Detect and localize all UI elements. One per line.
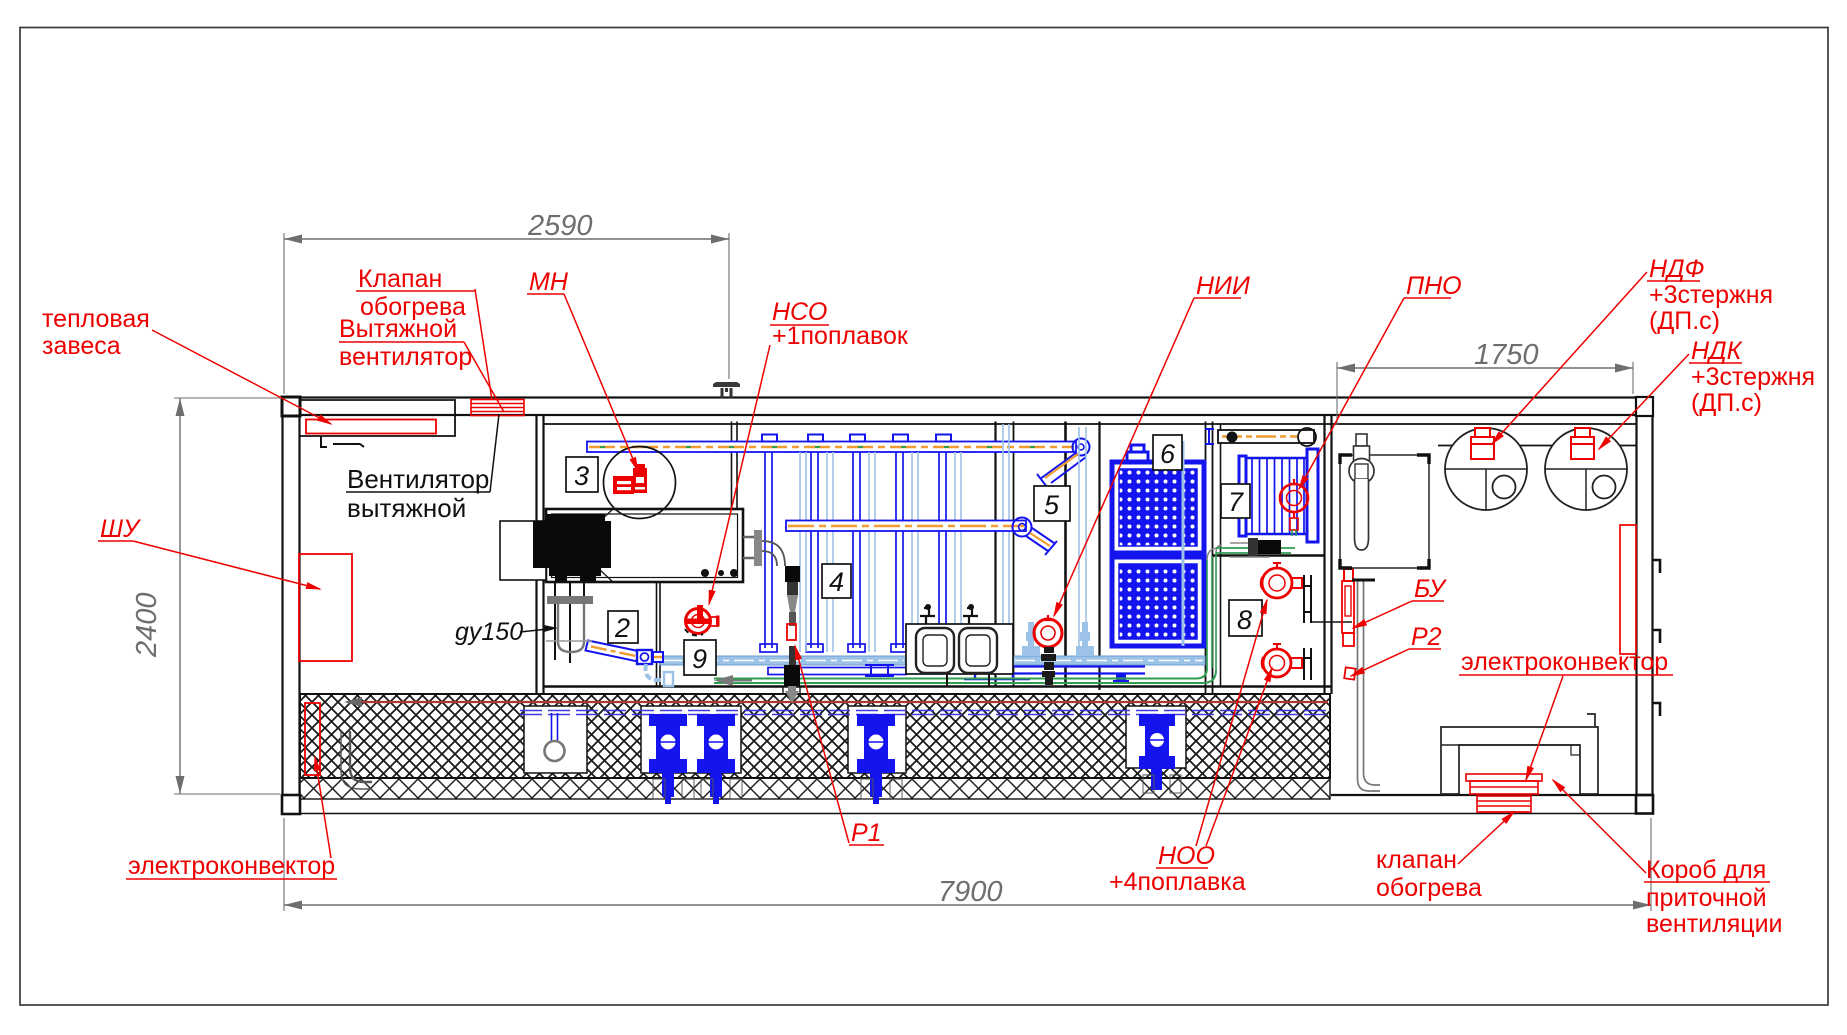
svg-text:обогрева: обогрева bbox=[1376, 874, 1482, 902]
svg-text:(ДП.с): (ДП.с) bbox=[1649, 307, 1720, 335]
svg-text:Клапан: Клапан bbox=[358, 265, 442, 293]
svg-text:Р2: Р2 bbox=[1411, 623, 1442, 651]
svg-text:клапан: клапан bbox=[1376, 846, 1457, 874]
svg-text:приточной: приточной bbox=[1646, 884, 1767, 912]
svg-text:6: 6 bbox=[1160, 439, 1176, 469]
svg-text:3: 3 bbox=[574, 461, 589, 491]
svg-text:НОО: НОО bbox=[1158, 842, 1215, 870]
svg-text:+3стержня: +3стержня bbox=[1691, 363, 1815, 391]
svg-text:БУ: БУ bbox=[1414, 575, 1448, 603]
svg-text:НДК: НДК bbox=[1691, 337, 1743, 365]
svg-text:Вентилятор: Вентилятор bbox=[347, 464, 489, 494]
svg-text:9: 9 bbox=[692, 644, 707, 674]
svg-text:завеса: завеса bbox=[42, 332, 121, 360]
svg-text:НИИ: НИИ bbox=[1196, 272, 1250, 300]
svg-text:4: 4 bbox=[829, 567, 844, 597]
svg-text:5: 5 bbox=[1044, 490, 1060, 520]
svg-text:+3стержня: +3стержня bbox=[1649, 281, 1773, 309]
svg-text:вытяжной: вытяжной bbox=[347, 493, 466, 523]
svg-text:8: 8 bbox=[1237, 605, 1252, 635]
svg-text:+1поплавок: +1поплавок bbox=[772, 322, 909, 350]
svg-text:Короб для: Короб для bbox=[1646, 856, 1766, 884]
svg-text:2: 2 bbox=[614, 613, 630, 643]
svg-text:1750: 1750 bbox=[1474, 339, 1539, 371]
svg-text:Р1: Р1 bbox=[851, 819, 882, 847]
svg-text:7900: 7900 bbox=[938, 876, 1003, 908]
svg-text:НДФ: НДФ bbox=[1649, 255, 1705, 283]
svg-text:вентилятор: вентилятор bbox=[339, 343, 472, 371]
svg-text:+4поплавка: +4поплавка bbox=[1109, 868, 1246, 896]
svg-text:2400: 2400 bbox=[131, 592, 163, 658]
svg-text:2590: 2590 bbox=[527, 210, 593, 242]
svg-text:ПНО: ПНО bbox=[1406, 272, 1462, 300]
svg-text:ШУ: ШУ bbox=[100, 515, 142, 543]
svg-text:электроконвектор: электроконвектор bbox=[128, 852, 335, 880]
svg-text:МН: МН bbox=[529, 268, 569, 296]
svg-text:(ДП.с): (ДП.с) bbox=[1691, 389, 1762, 417]
svg-text:электроконвектор: электроконвектор bbox=[1461, 648, 1668, 676]
svg-text:Вытяжной: Вытяжной bbox=[339, 315, 457, 343]
svg-text:7: 7 bbox=[1228, 487, 1244, 517]
svg-text:gу150: gу150 bbox=[455, 618, 523, 646]
svg-text:вентиляции: вентиляции bbox=[1646, 910, 1783, 938]
svg-text:тепловая: тепловая bbox=[42, 305, 150, 333]
